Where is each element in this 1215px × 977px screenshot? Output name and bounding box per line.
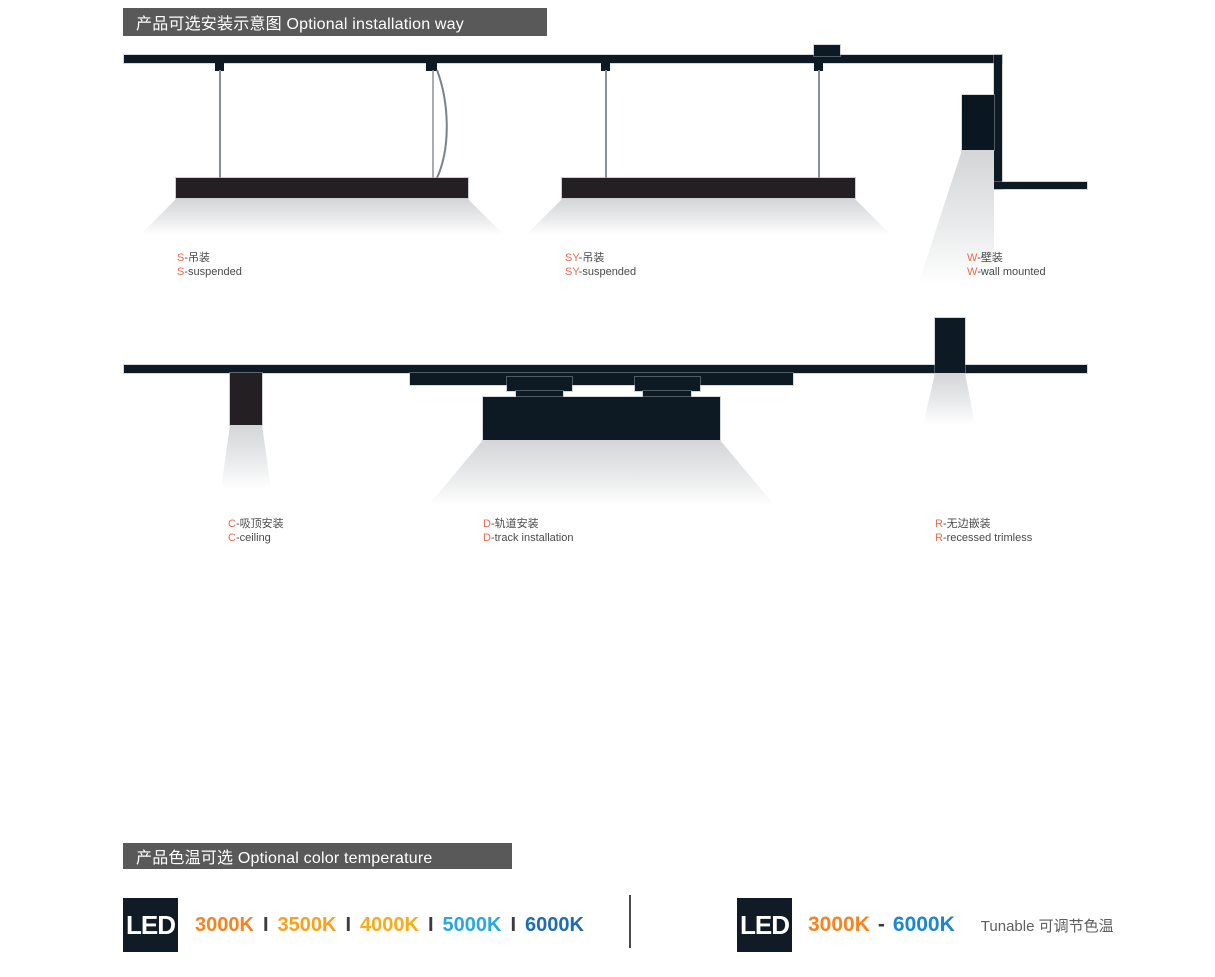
temp-option-3000k: 3000K bbox=[195, 914, 254, 937]
tunable-from: 3000K bbox=[808, 913, 870, 937]
label-sy-suspended: SY-吊装 SY-suspended bbox=[565, 251, 636, 279]
color-temp-section-header: 产品色温可选 Optional color temperature bbox=[123, 843, 512, 869]
temp-option-5000k: 5000K bbox=[443, 914, 502, 937]
label-sy-prefix: SY bbox=[565, 252, 579, 264]
d-track-fixture bbox=[483, 397, 720, 440]
c-light-beam bbox=[221, 425, 271, 489]
tunable-dash: - bbox=[878, 913, 885, 937]
wall-section bbox=[994, 55, 1002, 189]
track-adapter bbox=[507, 377, 572, 391]
r-light-beam bbox=[923, 373, 975, 425]
sy-suspended-fixture bbox=[562, 178, 855, 198]
d-light-beam bbox=[428, 440, 775, 506]
temp-option-3500k: 3500K bbox=[278, 914, 337, 937]
temp-option-4000k: 4000K bbox=[360, 914, 419, 937]
temp-separator: I bbox=[263, 914, 269, 937]
temp-separator: I bbox=[510, 914, 516, 937]
tunable-note: Tunable 可调节色温 bbox=[981, 915, 1114, 936]
label-r-prefix: R bbox=[935, 532, 943, 544]
label-d-track: D-轨道安装 D-track installation bbox=[483, 517, 574, 545]
c-ceiling-fixture bbox=[230, 373, 262, 425]
led-badge: LED bbox=[737, 898, 792, 952]
label-c-prefix: C bbox=[228, 518, 236, 530]
installation-section-header: 产品可选安装示意图 Optional installation way bbox=[123, 8, 547, 36]
installation-header-text: 产品可选安装示意图 Optional installation way bbox=[136, 10, 464, 34]
temp-option-6000k: 6000K bbox=[525, 914, 584, 937]
label-c-ceiling: C-吸顶安装 C-ceiling bbox=[228, 517, 284, 545]
label-s-zh: -吊装 bbox=[184, 252, 210, 264]
label-r-recessed: R-无边嵌装 R-recessed trimless bbox=[935, 517, 1032, 545]
label-d-zh: -轨道安装 bbox=[491, 518, 539, 530]
label-d-prefix: D bbox=[483, 518, 491, 530]
junction-box bbox=[814, 45, 840, 56]
section-divider bbox=[629, 895, 631, 948]
suspension-wire bbox=[219, 70, 221, 179]
label-r-en: -recessed trimless bbox=[943, 532, 1032, 544]
sy-light-beam bbox=[526, 199, 891, 235]
s-suspended-fixture bbox=[176, 178, 468, 198]
r-recessed-fixture bbox=[935, 318, 965, 373]
s-light-beam bbox=[140, 199, 504, 235]
track-adapter bbox=[635, 377, 700, 391]
label-sy-en: -suspended bbox=[579, 266, 637, 278]
power-cable bbox=[424, 62, 456, 182]
led-badge: LED bbox=[123, 898, 178, 952]
w-wall-fixture bbox=[962, 95, 994, 150]
ceiling-bar-top bbox=[124, 55, 1002, 63]
label-d-en: -track installation bbox=[491, 532, 574, 544]
track-rail bbox=[410, 373, 793, 385]
tunable-to: 6000K bbox=[893, 913, 955, 937]
led-badge-text: LED bbox=[126, 910, 175, 941]
wall-ledge bbox=[994, 182, 1087, 189]
label-w-wall-mounted: W-壁装 W-wall mounted bbox=[967, 251, 1046, 279]
color-temp-header-text: 产品色温可选 Optional color temperature bbox=[136, 844, 432, 868]
label-s-en: -suspended bbox=[184, 266, 242, 278]
label-r-zh: -无边嵌装 bbox=[943, 518, 991, 530]
temp-separator: I bbox=[345, 914, 351, 937]
label-s-suspended: S-吊装 S-suspended bbox=[177, 251, 242, 279]
label-c-zh: -吸顶安装 bbox=[236, 518, 284, 530]
label-w-zh: -壁装 bbox=[977, 252, 1003, 264]
label-d-prefix: D bbox=[483, 532, 491, 544]
temp-separator: I bbox=[428, 914, 434, 937]
label-sy-zh: -吊装 bbox=[579, 252, 605, 264]
label-c-prefix: C bbox=[228, 532, 236, 544]
label-r-prefix: R bbox=[935, 518, 943, 530]
label-sy-prefix: SY bbox=[565, 266, 579, 278]
catalog-page: 产品可选安装示意图 Optional installation way S-吊装… bbox=[0, 0, 1215, 977]
fixed-color-temp-options: 3000K I 3500K I 4000K I 5000K I 6000K bbox=[195, 898, 584, 952]
label-w-prefix: W bbox=[967, 252, 977, 264]
label-w-prefix: W bbox=[967, 266, 977, 278]
suspension-wire bbox=[818, 70, 820, 179]
label-w-en: -wall mounted bbox=[977, 266, 1045, 278]
led-badge-text: LED bbox=[740, 910, 789, 941]
label-c-en: -ceiling bbox=[236, 532, 271, 544]
tunable-color-temp: 3000K - 6000K Tunable 可调节色温 bbox=[808, 898, 1114, 952]
suspension-wire bbox=[605, 70, 607, 179]
